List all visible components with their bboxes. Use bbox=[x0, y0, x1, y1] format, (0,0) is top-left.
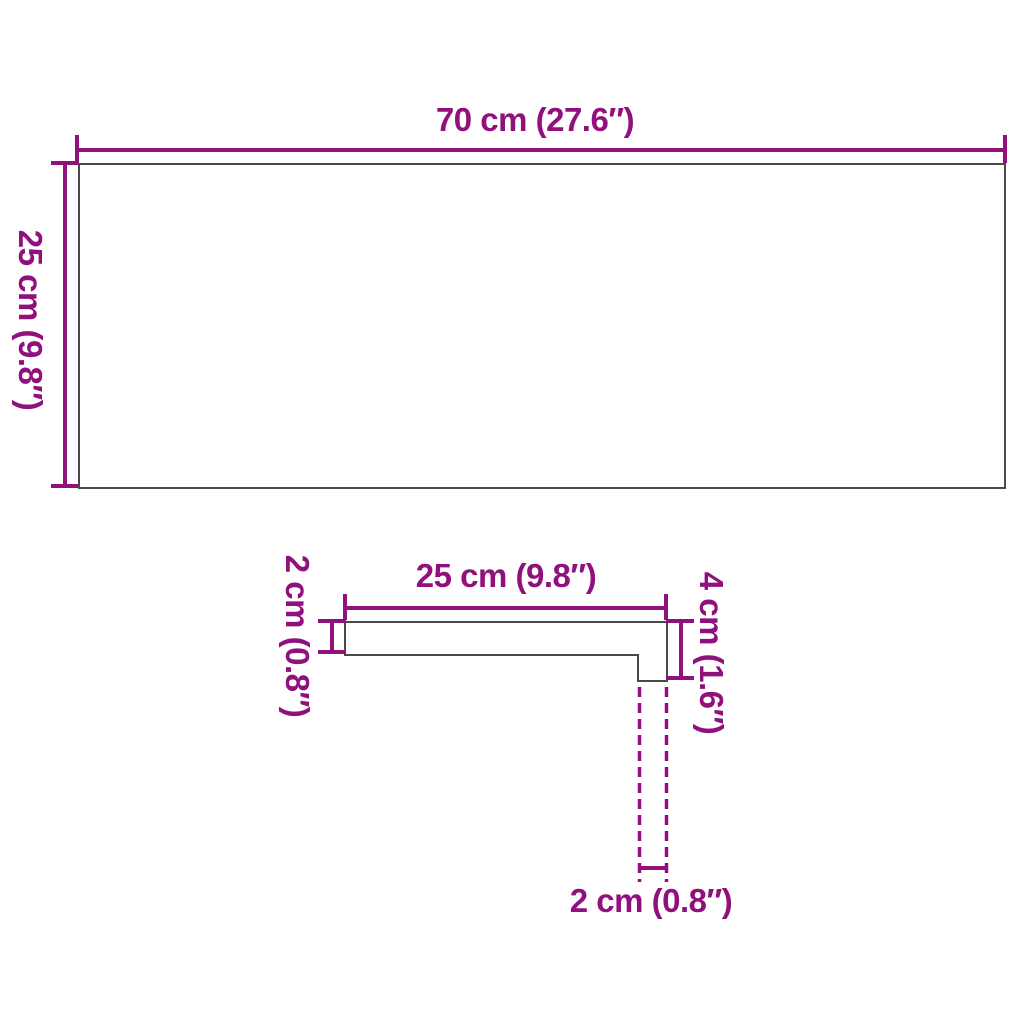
profile-thickness-tick-bottom bbox=[318, 650, 346, 654]
profile-width-tick-right bbox=[664, 594, 668, 620]
profile-height-dimension-line bbox=[679, 622, 683, 679]
top-view-height-tick-top bbox=[51, 161, 78, 165]
top-view-width-tick-left bbox=[75, 135, 79, 163]
profile-nose-dimension-label: 2 cm (0.8″) bbox=[501, 880, 801, 922]
profile-width-dimension-label: 25 cm (9.8″) bbox=[356, 555, 656, 597]
profile-thickness-tick-top bbox=[318, 619, 346, 623]
profile-width-tick-left bbox=[343, 594, 347, 620]
shape-outlines bbox=[0, 0, 1024, 1024]
profile-width-dimension-line bbox=[345, 606, 667, 610]
top-view-width-tick-right bbox=[1003, 135, 1007, 163]
top-view-width-dimension-line bbox=[77, 148, 1007, 152]
profile-nose-dimension-line bbox=[638, 866, 668, 870]
top-view-height-tick-bottom bbox=[51, 484, 78, 488]
profile-thickness-dimension-line bbox=[330, 622, 334, 653]
top-view-width-dimension-label: 70 cm (27.6″) bbox=[385, 99, 685, 141]
dimension-diagram: 70 cm (27.6″) 25 cm (9.8″) 25 cm (9.8″) … bbox=[0, 0, 1024, 1024]
profile-thickness-dimension-label: 2 cm (0.8″) bbox=[276, 486, 318, 786]
profile-height-dimension-label: 4 cm (1.6″) bbox=[690, 503, 732, 803]
top-view-height-dimension-label: 25 cm (9.8″) bbox=[9, 170, 51, 470]
profile-section-outline bbox=[345, 622, 667, 681]
top-view-height-dimension-line bbox=[63, 163, 67, 488]
top-view-panel-outline bbox=[79, 164, 1005, 488]
